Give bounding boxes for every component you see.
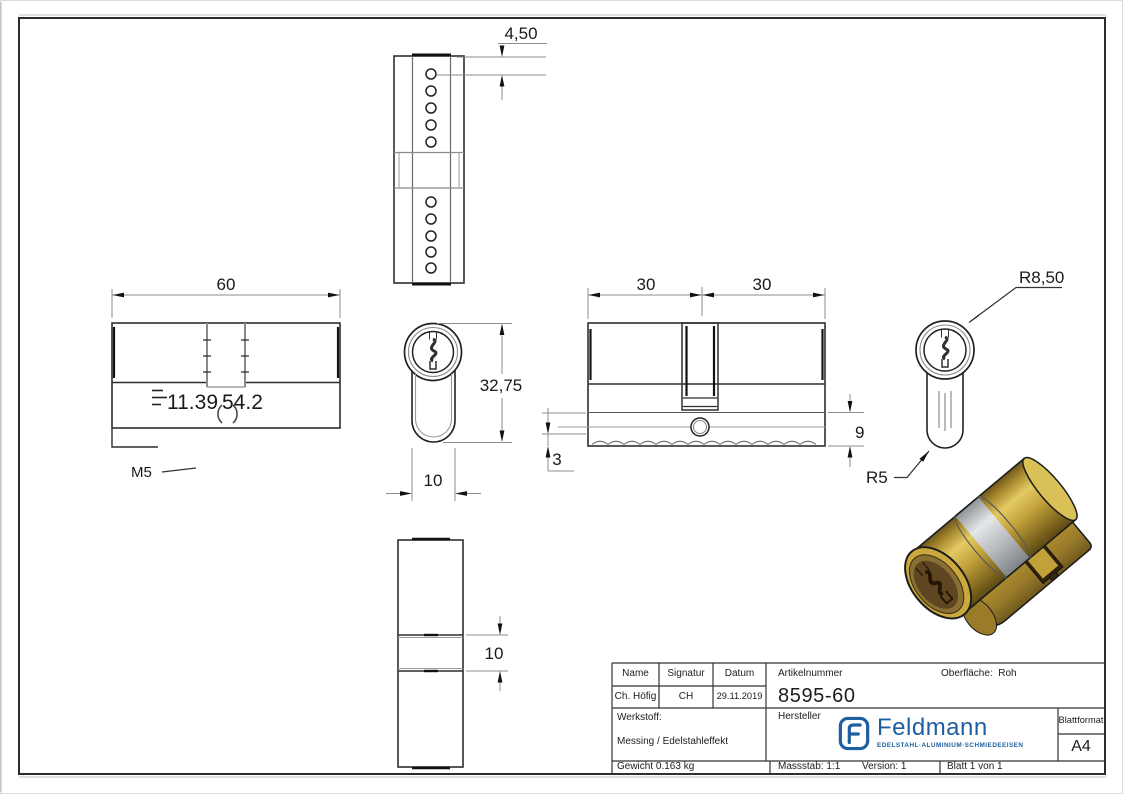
- sheet-number-text: Blatt 1 von 1: [947, 761, 1067, 774]
- dim-foot-radius-label: R5: [866, 468, 888, 487]
- thread-label: M5: [131, 464, 152, 481]
- date-column-header: Datum: [713, 663, 766, 686]
- dim-half-right-label: 30: [753, 275, 772, 294]
- dim-body-bottom-label: 9: [855, 423, 864, 442]
- dim-cam-width-label: 10: [485, 644, 504, 663]
- note-a-label: 11.39: [167, 391, 218, 414]
- manufacturer-logo: Feldmann EDELSTAHL·ALUMINIUM·SCHMIEDEEIS…: [838, 716, 1023, 751]
- material-value: Messing / Edelstahleffekt: [617, 736, 817, 749]
- material-label: Werkstoff:: [617, 712, 767, 725]
- dim-pin-label: 4,50: [504, 24, 537, 43]
- surface-row: Oberfläche: Roh: [941, 663, 1101, 686]
- version-text: Version: 1: [862, 761, 937, 774]
- dim-radius-label: R8,50: [1019, 268, 1064, 287]
- surface-label: Oberfläche:: [941, 669, 993, 680]
- view-pin-holes: 4,50: [394, 24, 547, 284]
- dim-height-label: 32,75: [480, 376, 523, 395]
- signature-value: CH: [659, 686, 713, 708]
- feldmann-logo-icon: [838, 716, 870, 751]
- dim-half-left-label: 30: [637, 275, 656, 294]
- view-front-face: 32,75 10: [386, 324, 522, 502]
- dim-length-label: 60: [217, 275, 236, 294]
- sheet-format-label: Blattformat: [1058, 708, 1104, 734]
- date-value: 29.11.2019: [713, 686, 766, 708]
- dim-width-label: 10: [424, 471, 443, 490]
- article-number-label: Artikelnummer: [778, 663, 938, 686]
- keyhole-icon: [942, 330, 949, 368]
- scale-text: Massstab: 1:1: [778, 761, 863, 774]
- logo-tagline-text: EDELSTAHL·ALUMINIUM·SCHMIEDEEISEN: [877, 742, 1023, 749]
- article-number-value: 8595-60: [778, 684, 978, 709]
- name-value: Ch. Höfig: [612, 686, 659, 708]
- logo-brand-text: Feldmann: [877, 716, 1023, 740]
- surface-value: Roh: [998, 669, 1016, 680]
- view-side-body: 30 30 9 3: [542, 275, 864, 471]
- sheet-format-value: A4: [1058, 734, 1104, 761]
- cylinder-3d-render: [892, 451, 1106, 657]
- view-top-lower: 10: [398, 539, 508, 768]
- logo-text-stack: Feldmann EDELSTAHL·ALUMINIUM·SCHMIEDEEIS…: [877, 716, 1023, 749]
- dim-foot-label: 3: [552, 450, 561, 469]
- weight-text: Gewicht 0.163 kg: [617, 761, 767, 774]
- drawing-sheet: 4,50 60 11.39 54.2: [0, 0, 1123, 794]
- view-top-body: 60 11.39 54.2 M5: [112, 275, 340, 481]
- view-profile-radii: R8,50 R5: [866, 268, 1064, 487]
- name-column-header: Name: [612, 663, 659, 686]
- keyhole-icon: [430, 332, 437, 370]
- note-b-label: 54.2: [222, 391, 263, 414]
- signature-column-header: Signatur: [659, 663, 713, 686]
